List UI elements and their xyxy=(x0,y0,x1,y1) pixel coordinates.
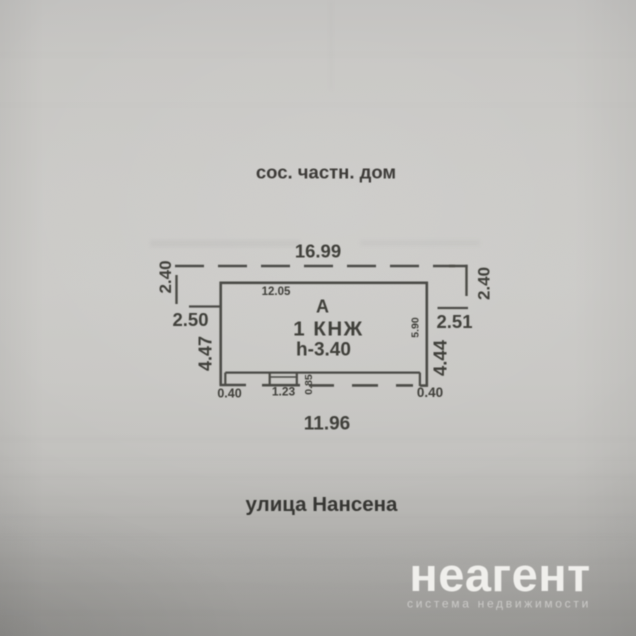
svg-text:2.40: 2.40 xyxy=(156,260,175,293)
svg-text:11.96: 11.96 xyxy=(304,414,351,435)
svg-text:16.99: 16.99 xyxy=(295,241,341,262)
svg-text:0.40: 0.40 xyxy=(217,387,241,401)
svg-text:система недвижимости: система недвижимости xyxy=(407,597,591,611)
svg-text:2.40: 2.40 xyxy=(475,267,494,300)
svg-text:0.40: 0.40 xyxy=(417,385,443,400)
svg-text:неагент: неагент xyxy=(409,548,590,601)
svg-text:1.23: 1.23 xyxy=(272,385,296,399)
svg-text:4.44: 4.44 xyxy=(430,339,451,376)
svg-text:0.85: 0.85 xyxy=(303,374,315,395)
svg-text:сос. частн. дом: сос. частн. дом xyxy=(256,162,396,183)
svg-text:4.47: 4.47 xyxy=(196,336,216,371)
svg-text:h-3.40: h-3.40 xyxy=(296,340,351,361)
svg-text:улица Нансена: улица Нансена xyxy=(246,493,398,516)
svg-text:12.05: 12.05 xyxy=(262,286,291,298)
svg-text:5.90: 5.90 xyxy=(410,317,422,338)
svg-text:А: А xyxy=(316,297,329,317)
svg-text:1 КНЖ: 1 КНЖ xyxy=(293,318,363,341)
svg-text:2.50: 2.50 xyxy=(172,309,208,330)
svg-text:2.51: 2.51 xyxy=(436,311,472,332)
